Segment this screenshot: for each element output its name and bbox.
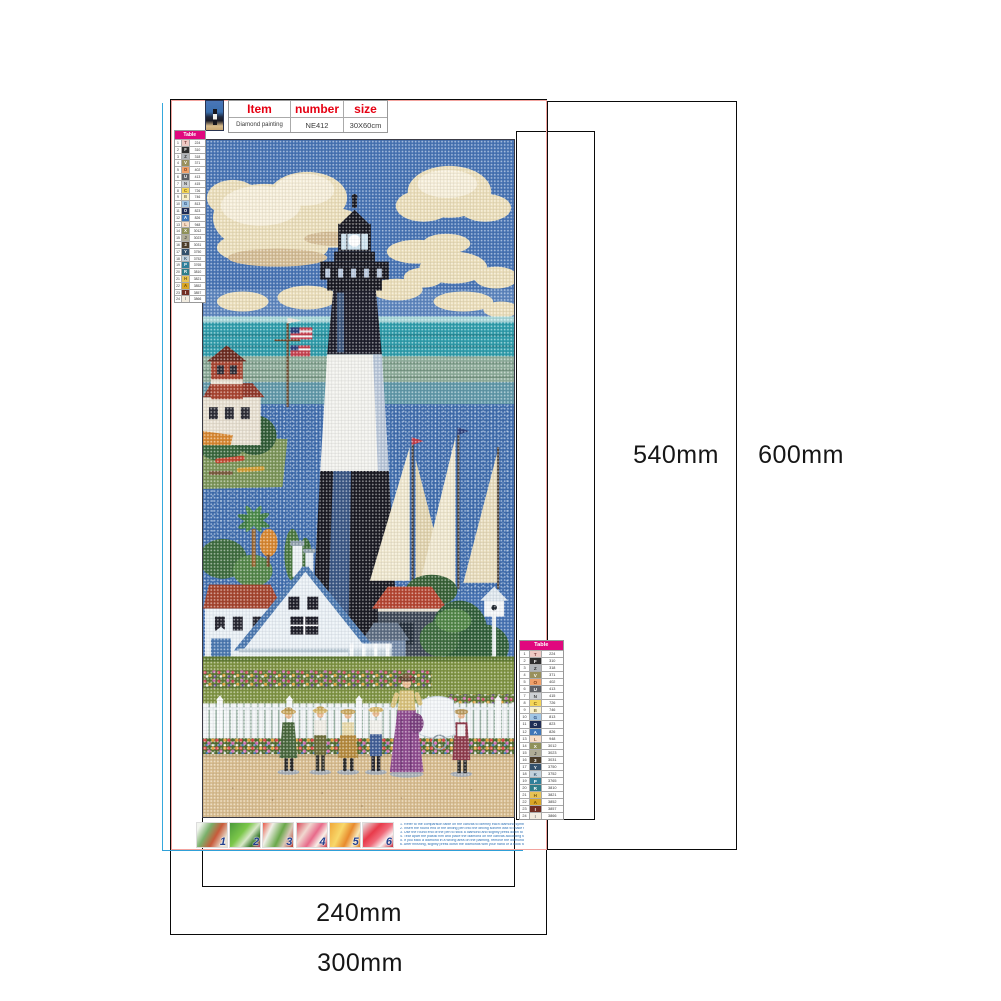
dmc-code: 413	[542, 686, 564, 692]
size-value: 30X60cm	[344, 118, 387, 132]
outer-height-outline	[547, 101, 737, 850]
dmc-code: 3857	[542, 806, 564, 812]
number-header: number	[291, 101, 343, 117]
row-number: 10	[520, 714, 529, 720]
step-number: 5	[353, 836, 359, 848]
dmc-code: 948	[190, 222, 205, 228]
item-info-table: Item number size Diamond painting NE412 …	[228, 100, 388, 133]
symbol-swatch: J	[529, 750, 542, 756]
color-table-row: 10 G 813	[520, 713, 563, 720]
color-table-row: 11 O 823	[520, 720, 563, 727]
row-number: 14	[520, 743, 529, 749]
color-table-row: 6 U 413	[175, 173, 205, 180]
dmc-code: 318	[190, 154, 205, 160]
symbol-swatch: O	[529, 679, 542, 685]
color-table-row: 8 C 726	[520, 699, 563, 706]
row-number: 5	[520, 679, 529, 685]
instruction-text: 1. Refer to the comparison table on the …	[400, 823, 524, 847]
dmc-code: 318	[542, 665, 564, 671]
dmc-code: 3866	[190, 296, 205, 302]
symbol-swatch: T	[529, 651, 542, 657]
product-thumbnail	[205, 100, 224, 131]
dmc-code: 948	[542, 736, 564, 742]
number-value: NE412	[291, 118, 343, 132]
symbol-swatch: H	[529, 792, 542, 798]
dmc-code: 3852	[190, 283, 205, 289]
step-number: 1	[220, 836, 226, 848]
symbol-swatch: Y	[181, 249, 190, 255]
inner-width-label: 240mm	[311, 899, 407, 928]
color-table-row: 15 J 3023	[175, 234, 205, 241]
color-table-row: 24 I 3866	[520, 812, 563, 819]
dmc-code: 310	[190, 147, 205, 153]
row-number: 21	[520, 792, 529, 798]
color-table-row: 2 F 310	[520, 657, 563, 664]
symbol-swatch: Y	[529, 764, 542, 770]
outer-width-label: 300mm	[312, 949, 408, 978]
row-number: 8	[520, 700, 529, 706]
dmc-code: 3012	[190, 228, 205, 234]
dmc-code: 813	[542, 714, 564, 720]
item-value: Diamond painting	[229, 118, 290, 132]
symbol-swatch: N	[529, 693, 542, 699]
symbol-swatch: L	[181, 222, 190, 228]
color-table-row: 22 A 3852	[175, 282, 205, 289]
symbol-swatch: U	[181, 174, 190, 180]
color-table-row: 2 F 310	[175, 146, 205, 153]
symbol-swatch: G	[181, 201, 190, 207]
symbol-swatch: J	[181, 235, 190, 241]
dmc-code: 3765	[542, 778, 564, 784]
symbol-swatch: P	[529, 778, 542, 784]
color-table-row: 24 I 3866	[175, 295, 205, 302]
color-table-row: 14 X 3012	[520, 742, 563, 749]
step-photo: 3	[262, 822, 294, 848]
color-table-row: 1 T 224	[520, 650, 563, 657]
color-table-row: 5 O 402	[520, 678, 563, 685]
symbol-swatch: U	[529, 686, 542, 692]
symbol-swatch: C	[529, 700, 542, 706]
row-number: 23	[520, 806, 529, 812]
dmc-code: 415	[542, 693, 564, 699]
symbol-swatch: K	[529, 771, 542, 777]
canvas-blue-edge-line-horizontal	[162, 850, 523, 852]
step-number: 3	[286, 836, 292, 848]
dmc-code: 3866	[542, 813, 564, 819]
dmc-code: 3031	[542, 757, 564, 763]
step-photo: 1	[196, 822, 228, 848]
dmc-code: 813	[190, 201, 205, 207]
row-number: 7	[520, 693, 529, 699]
color-table-row: 21 H 3821	[520, 791, 563, 798]
dmc-code: 3750	[542, 764, 564, 770]
step-number: 6	[386, 836, 392, 848]
dmc-code: 3821	[542, 792, 564, 798]
color-table-row: 1 T 224	[175, 139, 205, 146]
dmc-code: 826	[190, 215, 205, 221]
color-table-row: 21 H 3821	[175, 275, 205, 282]
symbol-swatch: R	[529, 785, 542, 791]
canvas-pink-border	[171, 100, 547, 850]
color-table-title: Table	[520, 641, 563, 650]
symbol-swatch: A	[181, 283, 190, 289]
color-table-row: 13 L 948	[520, 735, 563, 742]
symbol-swatch: V	[529, 672, 542, 678]
symbol-swatch: I	[529, 813, 542, 819]
symbol-swatch: A	[181, 215, 190, 221]
color-table-row: 13 L 948	[175, 221, 205, 228]
size-header: size	[344, 101, 387, 117]
instruction-step-photos: 1 2 3 4 5 6	[196, 822, 394, 848]
symbol-swatch: O	[529, 721, 542, 727]
row-number: 2	[520, 658, 529, 664]
color-table-row: 17 Y 3750	[175, 248, 205, 255]
color-table-row: 15 J 3023	[520, 749, 563, 756]
step-photo: 2	[229, 822, 261, 848]
symbol-swatch: C	[181, 188, 190, 194]
symbol-swatch: K	[181, 256, 190, 262]
color-table-row: 5 O 402	[175, 166, 205, 173]
step-photo: 6	[362, 822, 394, 848]
row-number: 12	[520, 729, 529, 735]
color-table-row: 3 Z 318	[175, 153, 205, 160]
color-table-row: 17 Y 3750	[520, 763, 563, 770]
dmc-code: 371	[542, 672, 564, 678]
dmc-code: 726	[190, 188, 205, 194]
symbol-swatch: I	[181, 290, 190, 296]
dmc-code: 3752	[190, 256, 205, 262]
row-number: 20	[520, 785, 529, 791]
dmc-code: 823	[190, 208, 205, 214]
row-number: 3	[520, 665, 529, 671]
dmc-code: 3852	[542, 799, 564, 805]
dmc-code: 3023	[190, 235, 205, 241]
row-number: 15	[520, 750, 529, 756]
color-table-row: 6 U 413	[520, 685, 563, 692]
color-table-title: Table	[175, 131, 205, 139]
color-table-row: 16 3 3031	[520, 756, 563, 763]
symbol-swatch: B	[181, 194, 190, 200]
row-number: 4	[520, 672, 529, 678]
row-number: 16	[520, 757, 529, 763]
symbol-swatch: X	[529, 743, 542, 749]
step-number: 4	[319, 836, 325, 848]
color-table-row: 4 V 371	[520, 671, 563, 678]
step-photo: 5	[329, 822, 361, 848]
color-table-row: 3 Z 318	[520, 664, 563, 671]
row-number: 13	[520, 736, 529, 742]
color-table-row: 11 O 823	[175, 207, 205, 214]
symbol-swatch: N	[181, 181, 190, 187]
dmc-code: 3750	[190, 249, 205, 255]
color-table-row: 12 A 826	[520, 728, 563, 735]
dmc-code: 402	[190, 167, 205, 173]
symbol-swatch: T	[181, 140, 190, 146]
symbol-swatch: H	[181, 276, 190, 282]
symbol-swatch: 3	[181, 242, 190, 248]
color-table-row: 14 X 3012	[175, 227, 205, 234]
color-table-row: 23 I 3857	[520, 805, 563, 812]
color-table-row: 20 R 3810	[175, 268, 205, 275]
dmc-code: 3752	[542, 771, 564, 777]
symbol-swatch: P	[181, 262, 190, 268]
dmc-code: 415	[190, 181, 205, 187]
symbol-swatch: V	[181, 160, 190, 166]
symbol-swatch: I	[529, 806, 542, 812]
symbol-swatch: A	[529, 729, 542, 735]
color-symbol-table-right: Table 1 T 224 2 F 310 3 Z 318 4 V 371 5 …	[519, 640, 564, 820]
color-table-row: 9 B 746	[520, 706, 563, 713]
outer-height-label: 600mm	[753, 441, 849, 470]
symbol-swatch: Z	[529, 665, 542, 671]
dmc-code: 3810	[190, 269, 205, 275]
dmc-code: 402	[542, 679, 564, 685]
dmc-code: 3857	[190, 290, 205, 296]
product-dimension-diagram: Item number size Diamond painting NE412 …	[0, 0, 1001, 1001]
dmc-code: 371	[190, 160, 205, 166]
color-table-row: 22 A 3852	[520, 798, 563, 805]
color-table-row: 18 K 3752	[520, 770, 563, 777]
inner-height-label: 540mm	[628, 441, 724, 470]
color-table-row: 19 P 3765	[175, 261, 205, 268]
dmc-code: 310	[542, 658, 564, 664]
symbol-swatch: I	[181, 296, 190, 302]
symbol-swatch: A	[529, 799, 542, 805]
row-number: 11	[520, 721, 529, 727]
color-table-row: 9 B 746	[175, 193, 205, 200]
dmc-code: 3765	[190, 262, 205, 268]
dmc-code: 3821	[190, 276, 205, 282]
dmc-code: 3023	[542, 750, 564, 756]
row-number: 1	[520, 651, 529, 657]
row-number: 6	[520, 686, 529, 692]
symbol-swatch: L	[529, 736, 542, 742]
row-number: 18	[520, 771, 529, 777]
instruction-line: 6. After finishing, slightly press down …	[400, 843, 524, 847]
color-table-row: 7 N 415	[520, 692, 563, 699]
dmc-code: 826	[542, 729, 564, 735]
thumbnail-lighthouse-icon	[213, 109, 217, 125]
symbol-swatch: F	[529, 658, 542, 664]
row-number: 19	[520, 778, 529, 784]
row-number: 17	[520, 764, 529, 770]
symbol-swatch: G	[529, 714, 542, 720]
dmc-code: 224	[190, 140, 205, 146]
symbol-swatch: O	[181, 208, 190, 214]
dmc-code: 224	[542, 651, 564, 657]
dmc-code: 746	[190, 194, 205, 200]
dmc-code: 413	[190, 174, 205, 180]
symbol-swatch: X	[181, 228, 190, 234]
symbol-swatch: O	[181, 167, 190, 173]
row-number: 9	[520, 707, 529, 713]
dmc-code: 3012	[542, 743, 564, 749]
color-table-row: 16 3 3031	[175, 241, 205, 248]
step-photo: 4	[296, 822, 328, 848]
color-table-row: 19 P 3765	[520, 777, 563, 784]
color-table-row: 20 R 3810	[520, 784, 563, 791]
dmc-code: 3810	[542, 785, 564, 791]
dmc-code: 746	[542, 707, 564, 713]
dmc-code: 3031	[190, 242, 205, 248]
color-table-row: 12 A 826	[175, 214, 205, 221]
row-number: 22	[520, 799, 529, 805]
canvas-blue-edge-line-vertical	[162, 103, 164, 850]
symbol-swatch: B	[529, 707, 542, 713]
step-number: 2	[253, 836, 259, 848]
dmc-code: 726	[542, 700, 564, 706]
symbol-swatch: Z	[181, 154, 190, 160]
dmc-code: 823	[542, 721, 564, 727]
color-table-row: 23 I 3857	[175, 289, 205, 296]
row-number: 24	[520, 813, 529, 819]
symbol-swatch: R	[181, 269, 190, 275]
color-table-row: 7 N 415	[175, 180, 205, 187]
symbol-swatch: 3	[529, 757, 542, 763]
color-symbol-table-left: Table 1 T 224 2 F 310 3 Z 318 4 V 371 5 …	[174, 130, 206, 303]
color-table-row: 4 V 371	[175, 159, 205, 166]
color-table-row: 18 K 3752	[175, 255, 205, 262]
item-header: Item	[229, 101, 290, 117]
symbol-swatch: F	[181, 147, 190, 153]
color-table-row: 10 G 813	[175, 200, 205, 207]
color-table-row: 8 C 726	[175, 187, 205, 194]
